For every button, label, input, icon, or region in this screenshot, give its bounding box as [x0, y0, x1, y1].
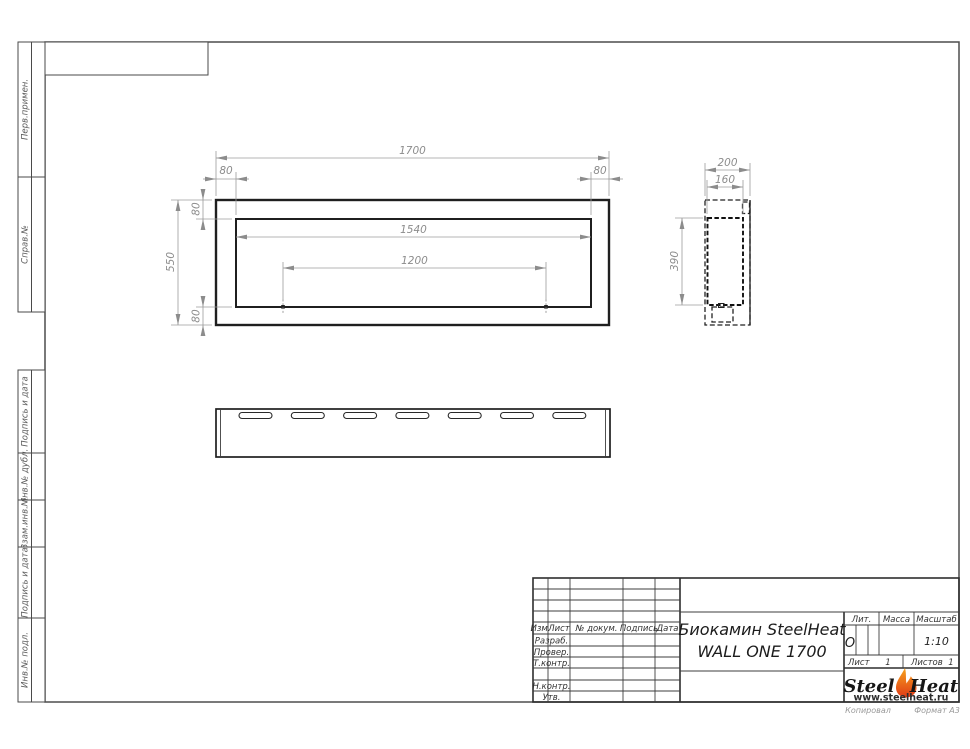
engineering-drawing: Перв.примен. Справ.№ Подпись и дата Инв.… [0, 0, 970, 749]
dim-inset-top: 80 [191, 202, 203, 216]
left-stamp-column: Перв.примен. Справ.№ Подпись и дата Инв.… [18, 42, 45, 702]
sheet-frame [45, 42, 959, 702]
stamp-label: Инв.№ дубл. [21, 449, 31, 504]
sheets-value: 1 [948, 658, 953, 668]
title-block: Изм. Лист № докум. Подпись Дата Разраб. … [531, 578, 960, 704]
dim-depth: 200 [717, 157, 737, 169]
footer-format: Формат А3 [914, 706, 960, 715]
drawing-sheet: Перв.примен. Справ.№ Подпись и дата Инв.… [0, 0, 970, 749]
logo-url: www.steelheat.ru [854, 693, 949, 704]
stamp-label: Подпись и дата [21, 376, 31, 446]
scale-label: Масштаб [916, 615, 956, 625]
footer-kopiroval: Копировал [845, 706, 891, 715]
side-top-bracket [743, 202, 750, 214]
col-list: Лист [547, 624, 571, 634]
side-inner-cavity [708, 218, 744, 305]
mass-label: Масса [883, 615, 910, 625]
row-utv: Утв. [543, 693, 561, 703]
doc-title-line2: WALL ONE 1700 [697, 642, 826, 661]
dim-overall-width: 1700 [399, 145, 426, 157]
lit-value: О [845, 636, 855, 651]
stamp-label: Взам.инв.№ [21, 497, 31, 549]
col-podpis: Подпись [620, 624, 658, 634]
frame-footer: Копировал Формат А3 [845, 706, 960, 715]
top-left-ref-box [45, 42, 208, 75]
steelheat-logo: Steel Heat www.steelheat.ru [843, 668, 958, 704]
row-razrab: Разраб. [535, 637, 568, 647]
dim-inner-depth: 160 [715, 174, 735, 186]
side-burner-block [712, 307, 733, 322]
row-prover: Провер. [534, 648, 569, 658]
stamp-label: Подпись и дата [21, 547, 31, 617]
doc-title-line1: Биокамин SteelHeat [678, 620, 846, 639]
dim-inset-right: 80 [593, 165, 607, 177]
row-nkontr: Н.контр. [532, 682, 570, 692]
side-view [705, 200, 750, 325]
stamp-label: Инв.№ подл. [21, 632, 31, 688]
title-block-border [533, 578, 959, 702]
dim-inner-height: 390 [669, 251, 681, 271]
dim-opening-width: 1540 [400, 224, 427, 236]
sheets-label: Листов [910, 658, 943, 668]
bottom-view [216, 409, 610, 457]
row-tkontr: Т.контр. [533, 659, 570, 669]
col-ndokum: № докум. [575, 624, 618, 634]
scale-value: 1:10 [924, 635, 949, 648]
dim-inset-left: 80 [219, 165, 233, 177]
frame-border [45, 42, 959, 702]
sheet-label: Лист [847, 658, 871, 668]
side-view-dimensions: 200 160 390 [669, 157, 750, 305]
dim-inset-bottom: 80 [191, 309, 203, 323]
lit-label: Лит. [851, 615, 872, 625]
stamp-label: Справ.№ [21, 225, 31, 264]
stamp-label: Перв.примен. [21, 79, 31, 140]
dim-overall-height: 550 [165, 252, 177, 272]
dim-burner-spacing: 1200 [401, 255, 428, 267]
col-data: Дата [655, 624, 678, 634]
sheet-value: 1 [885, 658, 890, 668]
